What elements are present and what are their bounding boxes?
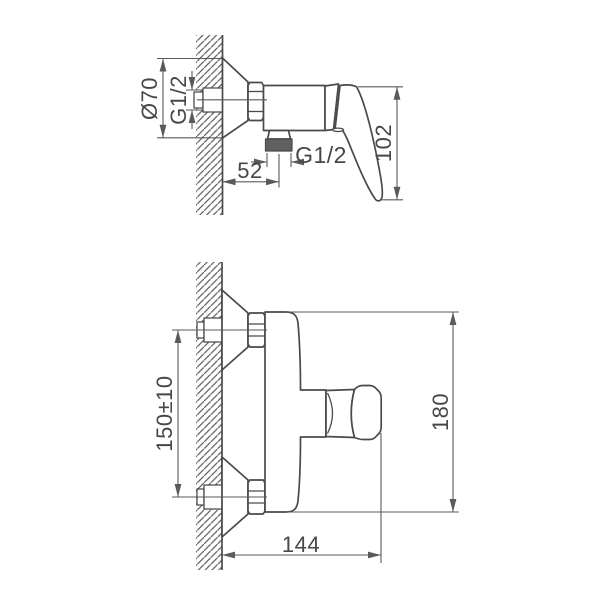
arrow-up-icon — [175, 330, 182, 343]
handle-base-detail — [333, 128, 344, 131]
arrow-right-icon — [368, 552, 381, 559]
dim-label-overall-height: 180 — [428, 393, 453, 431]
escutcheon — [223, 58, 249, 138]
arrow-down-icon — [394, 187, 401, 200]
arrow-up-icon — [450, 312, 457, 325]
dim-label-escutcheon-diameter: Ø70 — [137, 77, 162, 120]
dim-label-wall-thread: G1/2 — [166, 75, 191, 125]
outlet-thread — [266, 139, 293, 151]
dim-label-inlet-spacing: 150±10 — [152, 375, 177, 451]
arrow-down-icon — [175, 484, 182, 497]
dim-label-overall-width: 144 — [282, 532, 320, 557]
wall-hatch — [196, 35, 223, 215]
technical-drawing-canvas: Ø70 G1/2 102 52 G1/2 — [0, 0, 600, 600]
handle-knob — [351, 386, 381, 440]
arrow-down-icon — [160, 125, 167, 138]
outlet-neck — [268, 131, 291, 140]
wall-hatch — [196, 262, 222, 570]
dim-label-handle-height: 102 — [371, 124, 396, 162]
arrow-right-icon — [266, 178, 279, 185]
mixer-body — [265, 312, 326, 512]
handle-neck — [326, 390, 355, 438]
dim-label-outlet-offset: 52 — [237, 158, 262, 183]
arrow-up-icon — [160, 59, 167, 72]
dim-label-outlet-thread: G1/2 — [295, 142, 347, 168]
arrow-down-icon — [450, 499, 457, 512]
body-barrel — [264, 86, 326, 131]
hex-nut — [248, 83, 264, 121]
arrow-up-icon — [394, 87, 401, 100]
front-view: 150±10 180 144 — [152, 262, 459, 570]
side-view: Ø70 G1/2 102 52 G1/2 — [137, 35, 403, 215]
arrow-left-icon — [223, 178, 236, 185]
arrow-left-icon — [222, 552, 235, 559]
